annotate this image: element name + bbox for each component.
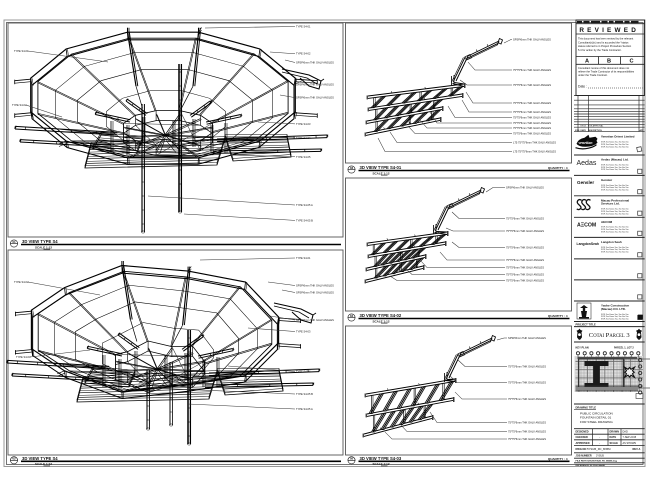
svg-text:FOR STEEL DRAWING: FOR STEEL DRAWING [580,420,613,424]
svg-text:PARCEL 1, LOT 2: PARCEL 1, LOT 2 [614,347,634,350]
svg-text:QUANTITY : 4: QUANTITY : 4 [548,166,568,170]
svg-text:QUANTITY : 4: QUANTITY : 4 [548,314,568,318]
svg-text:3D VIEW TYPE S4-02: 3D VIEW TYPE S4-02 [360,313,402,318]
svg-text:TYPE S4-05 B: TYPE S4-05 B [296,392,313,396]
svg-text:XX/F, Xxx Xxxxx Xxx, Xxx Xxx X: XX/F, Xxx Xxxxx Xxx, Xxx Xxx Xxx [601,319,629,321]
svg-text:03: 03 [350,166,354,170]
svg-text:PROJECT TITLE: PROJECT TITLE [576,322,596,326]
svg-text:COTAI PARCEL 3: COTAI PARCEL 3 [589,332,631,339]
svg-text:75*75*6mm THK GALV ANGLES: 75*75*6mm THK GALV ANGLES [508,430,546,434]
svg-text:XX/F, Xxx Xxxxx Xxx, Xxx Xxx X: XX/F, Xxx Xxxxx Xxx, Xxx Xxx Xxx [601,252,629,254]
svg-text:REVIEWED: REVIEWED [579,27,639,34]
svg-text:Date :: Date : [578,85,587,89]
svg-text:SCALE 1:12: SCALE 1:12 [35,245,52,249]
svg-text:75*75*6mm THK GALV ANGLES: 75*75*6mm THK GALV ANGLES [508,381,546,385]
svg-text:Venetian Orient Limited: Venetian Orient Limited [601,135,635,139]
svg-text:Services Ltd.: Services Ltd. [601,202,620,206]
svg-text:FILE PATH XXXX/5YSUB_FD_8N5M.: FILE PATH XXXX/5YSUB_FD_8N5M.dwg [576,459,618,462]
svg-text:3D VIEW TYPE S4-03: 3D VIEW TYPE S4-03 [360,456,402,461]
svg-text:75*75*6mm THK GALV ANGLES: 75*75*6mm THK GALV ANGLES [506,279,544,283]
svg-text:Gensler: Gensler [577,180,594,185]
svg-text:TYPE S4-03: TYPE S4-03 [16,355,31,359]
svg-text:L75 75*75*6mm THK GALV ANGLES: L75 75*75*6mm THK GALV ANGLES [513,141,556,145]
svg-text:Consultant review of this: Consultant review of this document does … [578,66,629,70]
svg-text:5.4 for action by the Tra: 5.4 for action by the Trade Contractor. [578,48,622,52]
svg-text:04: 04 [350,314,354,318]
svg-text:FOR APPROVAL: FOR APPROVAL [588,125,604,128]
svg-text:relieve the Trade Contracto: relieve the Trade Contractor of its resp… [578,69,635,73]
svg-text:3D VIEW TYPE S4: 3D VIEW TYPE S4 [22,239,58,244]
svg-text:DESCRIPTION: DESCRIPTION [588,130,602,132]
svg-text:75*75*6mm THK GALV ANGLES: 75*75*6mm THK GALV ANGLES [508,437,546,441]
svg-text:KEY PLAN: KEY PLAN [576,346,589,350]
svg-text:TYPE S4-01: TYPE S4-01 [296,25,311,29]
svg-text:(Macau) CO. LTD.: (Macau) CO. LTD. [601,307,626,311]
svg-text:under the Trade Contract.: under the Trade Contract. [578,73,608,77]
svg-text:TYPE S4-04: TYPE S4-04 [296,370,311,374]
svg-text:venetian: venetian [579,140,594,145]
svg-text:SCALE 1:12: SCALE 1:12 [373,319,390,323]
svg-text:C: C [629,59,633,65]
svg-text:75*75*6mm THK GALV ANGLES: 75*75*6mm THK GALV ANGLES [513,121,551,125]
svg-text:APPROVED: APPROVED [576,442,590,445]
svg-text:TYPE S4-05: TYPE S4-05 [296,155,311,159]
svg-text:AS SHOWN: AS SHOWN [623,442,637,445]
svg-text:AΞCOM: AΞCOM [577,222,596,228]
svg-text:QUANTITY : 4: QUANTITY : 4 [548,457,568,461]
svg-text:75*75*6mm THK GALV ANGLES: 75*75*6mm THK GALV ANGLES [506,258,544,262]
svg-text:TYPE S4-05 A: TYPE S4-05 A [296,407,313,411]
svg-text:75*75*6mm THK GALV ANGLES: 75*75*6mm THK GALV ANGLES [513,116,551,120]
svg-text:DATE: DATE [581,129,587,132]
svg-text:REV A: REV A [633,447,641,451]
svg-text:Aedas (Macau) Ltd.: Aedas (Macau) Ltd. [601,158,629,162]
svg-text:TYPE S4-02: TYPE S4-02 [14,280,29,284]
svg-text:3D VIEW TYPE S4-01: 3D VIEW TYPE S4-01 [360,165,402,170]
svg-text:TYPE S4-04: TYPE S4-04 [296,136,311,140]
svg-text:TYPE S4-01: TYPE S4-01 [14,49,29,53]
svg-text:SPSP/6mm THK GALV ANGLES: SPSP/6mm THK GALV ANGLES [296,318,334,322]
svg-text:TYPE S4-01: TYPE S4-01 [296,256,311,260]
svg-text:75*75*6mm THK GALV ANGLES: 75*75*6mm THK GALV ANGLES [506,266,544,270]
svg-text:DRAWING TITLE: DRAWING TITLE [576,405,597,409]
svg-text:TYPE S4-05 B: TYPE S4-05 B [296,218,313,222]
svg-text:DAD: DAD [623,431,628,434]
svg-text:SPSP/6mm THK GALV ANGLES: SPSP/6mm THK GALV ANGLES [296,82,334,86]
svg-text:01: 01 [12,240,16,244]
svg-text:3D VIEW TYPE S4: 3D VIEW TYPE S4 [22,456,58,461]
svg-text:SCALE 1:12: SCALE 1:12 [35,462,52,466]
svg-text:XX/F, Xxx Xxxxx Xxx, Xxx Xxx X: XX/F, Xxx Xxxxx Xxx, Xxx Xxx Xxx [601,213,629,215]
svg-text:SCALE 1:12: SCALE 1:12 [373,462,390,466]
svg-text:XX/F, Xxx Xxxxx Xxx, Xxx Xxx X: XX/F, Xxx Xxxxx Xxx, Xxx Xxx Xxx [601,146,629,148]
svg-text:SPSP/6mm THK GALV ANGLES: SPSP/6mm THK GALV ANGLES [296,291,334,295]
svg-text:LangdonSeah: LangdonSeah [577,242,599,246]
svg-text:DATE: DATE [610,436,617,439]
svg-text:Aedas: Aedas [577,160,597,167]
svg-text:5/9/13: 5/9/13 [580,126,586,128]
svg-text:DWG NO: DWG NO [576,447,587,451]
svg-text:TYPE S4-03: TYPE S4-03 [296,122,311,126]
svg-text:75*75*6mm THK GALV ANGLES: 75*75*6mm THK GALV ANGLES [513,83,551,87]
svg-text:02: 02 [12,457,16,461]
svg-text:SYM: SYM [575,130,580,132]
svg-text:CHECKED: CHECKED [576,436,589,439]
svg-text:SPSP/6mm THK GALV ANGLES: SPSP/6mm THK GALV ANGLES [296,61,334,65]
svg-text:APP: APP [640,129,645,132]
svg-text:SCALE 1:12: SCALE 1:12 [373,171,390,175]
svg-text:SPSP/6mm THK GALV ANGLES: SPSP/6mm THK GALV ANGLES [508,336,546,340]
svg-text:7-SEP-2015: 7-SEP-2015 [623,436,637,439]
svg-text:DESIGNED: DESIGNED [576,431,589,434]
svg-text:TYPE S4-02: TYPE S4-02 [12,103,27,107]
svg-text:75*75*6mm THK GALV ANGLES: 75*75*6mm THK GALV ANGLES [506,273,544,277]
svg-text:Langdon Seah: Langdon Seah [601,240,622,244]
svg-text:75*75*6mm THK GALV ANGLES: 75*75*6mm THK GALV ANGLES [508,365,546,369]
svg-text:SCALE: SCALE [610,442,619,445]
svg-text:75*75*6mm THK GALV ANGLES: 75*75*6mm THK GALV ANGLES [513,68,551,72]
svg-text:75*75*6mm THK GALV ANGLES: 75*75*6mm THK GALV ANGLES [513,110,551,114]
svg-text:75*75*6mm THK GALV ANGLES: 75*75*6mm THK GALV ANGLES [506,217,544,221]
svg-text:3YSUB: 3YSUB [596,455,604,458]
svg-text:05: 05 [350,457,354,461]
svg-text:status referred to in Proj: status referred to in Project Procedure … [578,44,632,48]
svg-text:REFERENCE XX FILE NAME: REFERENCE XX FILE NAME [576,464,606,467]
svg-text:Consultant(s)(s) and is acc: Consultant(s)(s) and is accorded the *st… [578,40,629,44]
svg-text:5YSUB_FD_8N5M: 5YSUB_FD_8N5M [587,447,611,451]
svg-text:TYPE S4-03: TYPE S4-03 [296,330,311,334]
svg-text:75*75*6mm THK GALV ANGLES: 75*75*6mm THK GALV ANGLES [508,421,546,425]
svg-text:B: B [607,59,611,65]
svg-text:L75 75*75*6mm THK GALV ANGLES: L75 75*75*6mm THK GALV ANGLES [513,150,556,154]
svg-text:Gensler: Gensler [601,178,613,182]
svg-text:SPSP/6mm THK GALV ANGLES: SPSP/6mm THK GALV ANGLES [513,38,551,42]
svg-text:AECOM: AECOM [601,220,613,224]
svg-text:This document has been revised: This document has been revised by the re… [578,37,634,41]
svg-text:SPSP/6mm THK GALV ANGLES: SPSP/6mm THK GALV ANGLES [296,96,334,100]
svg-text:XX/F, Xxx Xxxxx Xxx, Xxx Xxx X: XX/F, Xxx Xxxxx Xxx, Xxx Xxx Xxx [601,169,629,171]
svg-text:XX/F, Xxx Xxxxx Xxx, Xxx Xxx X: XX/F, Xxx Xxxxx Xxx, Xxx Xxx Xxx [601,232,629,234]
svg-text:DRAWN: DRAWN [610,431,620,434]
svg-text:75*75*6mm THK GALV ANGLES: 75*75*6mm THK GALV ANGLES [513,126,551,130]
svg-text:A: A [585,59,589,65]
svg-text:SPSP/6mm THK GALV ANGLES: SPSP/6mm THK GALV ANGLES [296,284,334,288]
svg-text:75*75*6mm THK GALV ANGLES: 75*75*6mm THK GALV ANGLES [506,229,544,233]
svg-text:75*75*6mm THK GALV ANGLES: 75*75*6mm THK GALV ANGLES [506,246,544,250]
svg-text:TYPE S4-05 A: TYPE S4-05 A [296,203,313,207]
svg-text:SPSP/6mm THK GALV ANGLES: SPSP/6mm THK GALV ANGLES [506,186,544,190]
svg-text:75*75*6mm THK GALV ANGLES: 75*75*6mm THK GALV ANGLES [508,397,546,401]
svg-text:75*75*6mm THK GALV ANGLES: 75*75*6mm THK GALV ANGLES [513,132,551,136]
svg-text:JOB NUMBER: JOB NUMBER [576,455,592,458]
svg-text:75*75*6mm THK GALV ANGLES: 75*75*6mm THK GALV ANGLES [513,101,551,105]
svg-text:XX/F, Xxx Xxxxx Xxx, Xxx Xxx X: XX/F, Xxx Xxxxx Xxx, Xxx Xxx Xxx [601,190,629,192]
svg-text:TYPE S4-02: TYPE S4-02 [296,52,311,56]
